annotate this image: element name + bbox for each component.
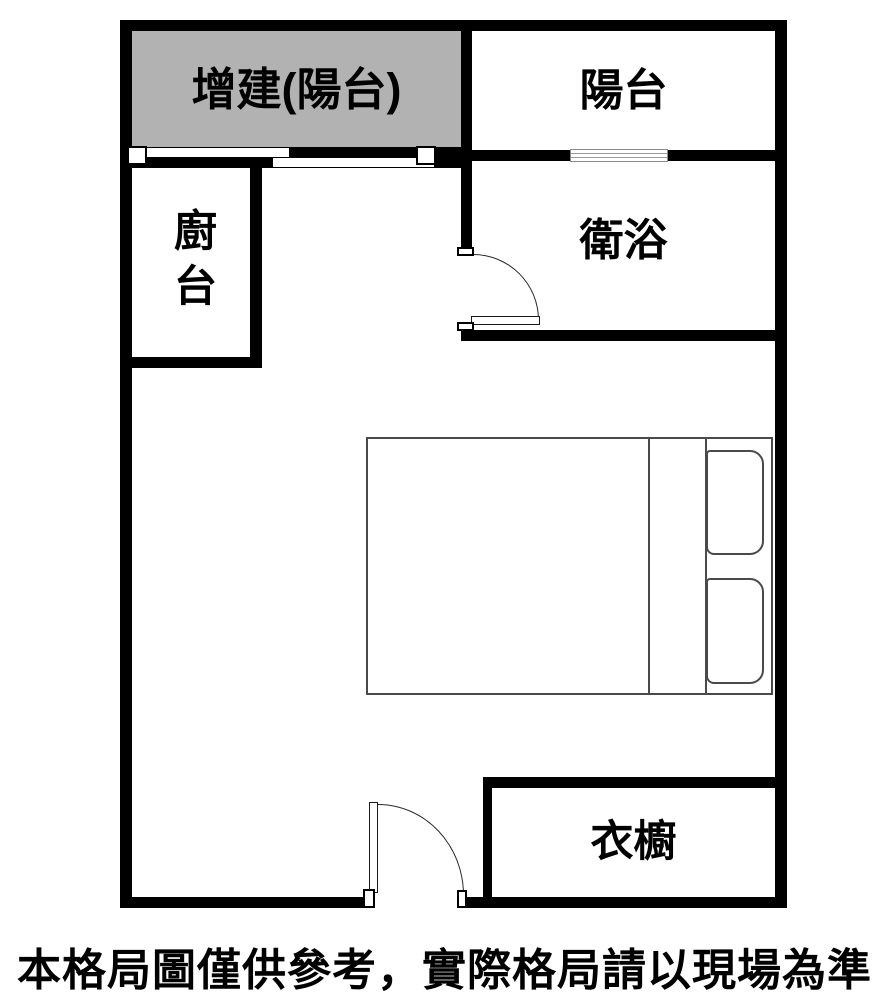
room-label-kitchen: 廚台: [132, 168, 250, 358]
disclaimer-text: 本格局圖僅供參考，實際格局請以現場為準: [0, 928, 889, 1003]
wall-outer-bottom-left-segment: [120, 897, 367, 908]
pillow-icon-top: [706, 450, 764, 555]
room-label-balcony: 陽台: [472, 31, 775, 150]
bathroom-door-jamb-bottom: [457, 322, 474, 331]
wall-balcony-bathroom-left: [461, 20, 472, 255]
entry-door-leaf: [369, 802, 378, 893]
wall-kitchen-right: [250, 157, 262, 368]
pillow-icon-bottom: [706, 578, 764, 684]
entry-door-swing-arc: [378, 804, 464, 895]
room-label-added-balcony: 增建(陽台): [132, 31, 461, 147]
room-label-wardrobe: 衣櫥: [492, 788, 775, 897]
wall-outer-bottom-right-segment: [466, 897, 787, 908]
wall-bathroom-bottom: [461, 330, 775, 341]
sliding-door-panel-upper: [128, 147, 290, 158]
wall-wardrobe-top: [483, 777, 775, 788]
wall-outer-right: [775, 20, 787, 908]
sliding-door-panel-lower: [272, 157, 435, 168]
wall-outer-top: [120, 20, 787, 31]
entry-door-jamb-hinge: [363, 889, 375, 908]
wall-kitchen-bottom: [120, 357, 262, 368]
wall-wardrobe-left: [483, 777, 492, 897]
sliding-door-jamb-left: [127, 146, 147, 165]
floor-plan: 增建(陽台) 陽台 衛浴 廚台 衣櫥 本格局圖僅供參考，實際格局請以現場為準: [0, 0, 889, 1003]
entry-door-jamb-stop: [457, 890, 467, 908]
sliding-door-jamb-right: [416, 146, 436, 165]
bed-fold-line: [648, 439, 650, 693]
room-label-bathroom: 衛浴: [472, 161, 775, 320]
